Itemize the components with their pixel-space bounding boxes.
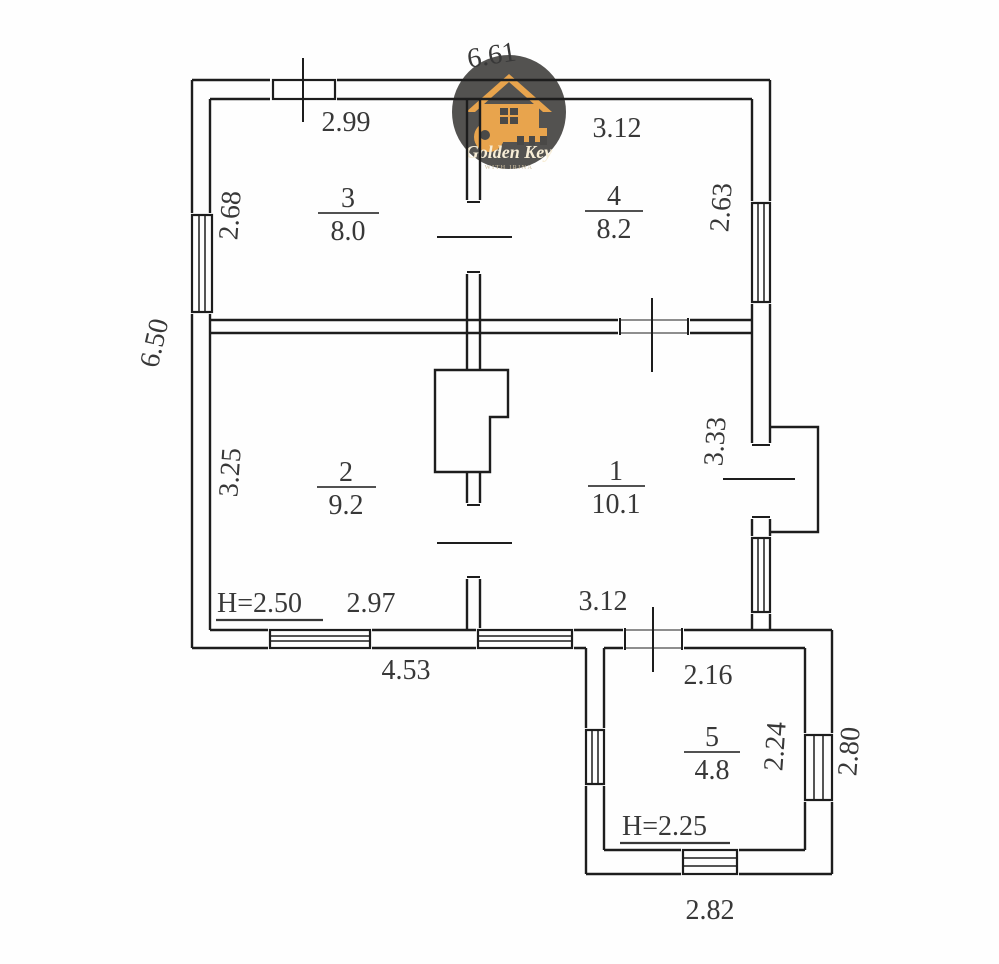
- floor-plan-page: Golden Key WITH IRINA: [0, 0, 999, 964]
- room2-number: 2: [339, 457, 353, 488]
- ceiling-height-main: H=2.50: [217, 588, 302, 619]
- room3-area: 8.0: [331, 216, 366, 247]
- dim-annex-top: 2.16: [684, 660, 733, 691]
- dim-annex-side-inner: 2.24: [758, 721, 792, 772]
- room4-area: 8.2: [597, 214, 632, 245]
- logo-subtitle: WITH IRINA: [485, 164, 534, 171]
- dim-room4-side: 2.63: [704, 182, 738, 233]
- room-label-1: 1 10.1: [588, 456, 645, 520]
- dim-annex-bottom: 2.82: [686, 895, 735, 926]
- room3-number: 3: [341, 183, 355, 214]
- ceiling-height-annex: H=2.25: [622, 811, 707, 842]
- room-label-3: 3 8.0: [318, 183, 379, 247]
- room2-area: 9.2: [329, 490, 364, 521]
- room-label-5: 5 4.8: [684, 722, 740, 786]
- room1-area: 10.1: [592, 489, 641, 520]
- windows: [189, 77, 835, 877]
- dim-room1-bottom: 3.12: [579, 586, 628, 617]
- dim-top-left-section: 2.99: [322, 107, 371, 138]
- dim-top-right-section: 3.12: [593, 113, 642, 144]
- dim-room2-bottom: 2.97: [347, 588, 396, 619]
- room1-number: 1: [609, 456, 623, 487]
- dim-bottom-width: 4.53: [382, 655, 431, 686]
- room-label-2: 2 9.2: [317, 457, 376, 521]
- dim-room2-side: 3.25: [213, 447, 247, 498]
- room-label-4: 4 8.2: [585, 181, 643, 245]
- room5-number: 5: [705, 722, 719, 753]
- dim-room1-side: 3.33: [698, 416, 732, 467]
- room-labels: 3 8.0 4 8.2 2 9.2 1 10.1 5 4.8: [317, 181, 740, 786]
- room4-number: 4: [607, 181, 621, 212]
- dim-annex-side-outer: 2.80: [832, 726, 866, 777]
- dim-room3-side: 2.68: [213, 190, 247, 241]
- room5-area: 4.8: [695, 755, 730, 786]
- chimney-block: [435, 370, 508, 472]
- dim-left-height: 6.50: [134, 316, 175, 371]
- floor-plan-drawing: Golden Key WITH IRINA: [0, 0, 999, 964]
